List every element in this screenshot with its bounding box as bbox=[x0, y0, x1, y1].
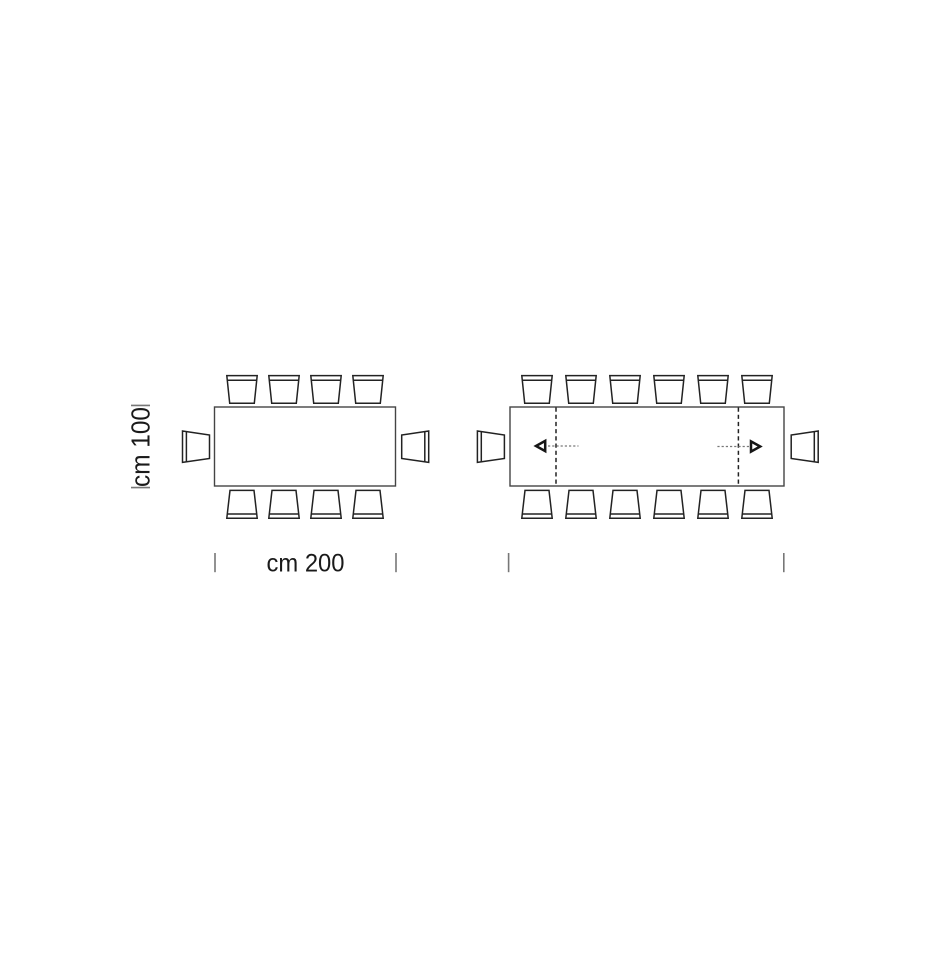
svg-text:cm 100: cm 100 bbox=[128, 407, 156, 487]
svg-text:cm 200: cm 200 bbox=[267, 549, 345, 577]
